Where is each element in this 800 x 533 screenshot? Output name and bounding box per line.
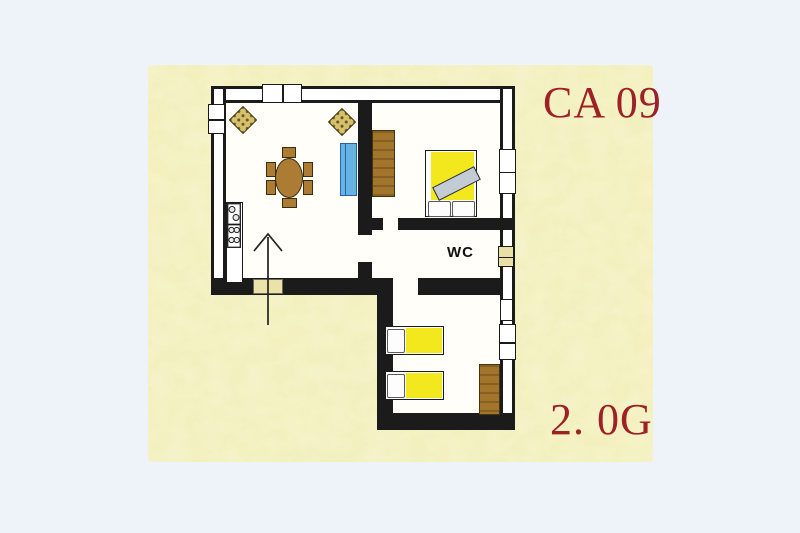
unit-code-label: CA 09 [543, 81, 662, 125]
single-bed-2-blanket [406, 373, 442, 398]
single-bed-1 [385, 326, 444, 355]
stove-icon [227, 224, 241, 248]
chair-top [282, 147, 296, 158]
window-left [208, 104, 225, 134]
window-top [262, 84, 302, 103]
interior-wall-bedroom-stub [372, 218, 383, 230]
sofa [340, 143, 357, 196]
door-opening-bedroom-2 [393, 278, 418, 295]
single-bed-1-blanket [406, 328, 442, 353]
chair-right-1 [303, 162, 313, 177]
interior-wall-divider-lower [358, 262, 372, 278]
pillow-2 [452, 201, 475, 217]
wc-label: WC [447, 245, 474, 260]
window-bedroom-1 [499, 149, 516, 194]
dining-table [275, 158, 303, 198]
double-bed [425, 150, 477, 217]
entrance-arrow-icon [248, 229, 288, 329]
interior-wall-hall-bedroom2 [418, 278, 500, 295]
wardrobe-bedroom-2 [479, 364, 500, 415]
floor-plan-scan: WC CA 09 2. 0G [0, 0, 800, 533]
single-bed-1-pillow [387, 329, 405, 353]
chair-left-2 [266, 180, 276, 195]
window-bedroom-2-lower [499, 324, 516, 360]
chair-bottom [282, 198, 297, 208]
exterior-wall-lower-left [377, 283, 393, 430]
room-hall-wc [372, 230, 500, 278]
window-bedroom-2-upper [500, 299, 513, 321]
floor-label: 2. 0G [550, 398, 653, 442]
single-bed-2-pillow [387, 374, 405, 398]
kitchen-counter [226, 202, 243, 283]
chair-right-2 [303, 180, 313, 195]
door-opening-living-hall [358, 235, 372, 262]
chair-left-1 [266, 162, 276, 177]
wardrobe-bedroom-1 [372, 130, 395, 197]
pillow-1 [428, 201, 451, 217]
kitchen-sink-icon [227, 203, 241, 225]
interior-wall-divider-upper [358, 103, 372, 235]
exterior-wall-lower-bottom [377, 413, 515, 430]
door-opening-bedroom-1 [383, 218, 398, 230]
window-wc [498, 246, 514, 267]
single-bed-2 [385, 371, 444, 400]
exterior-wall-top [211, 86, 515, 103]
interior-wall-bedroom-bottom [398, 218, 515, 230]
